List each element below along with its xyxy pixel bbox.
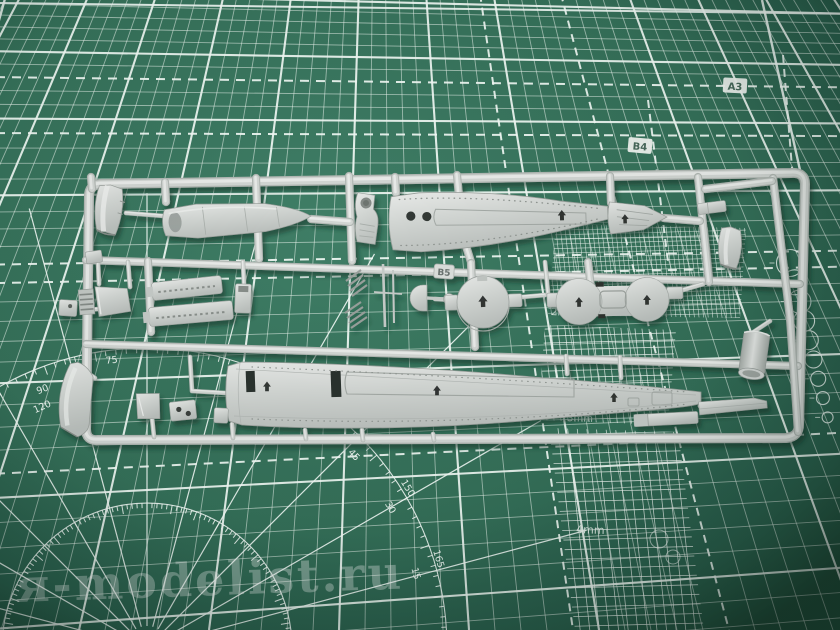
- part-small-block: [214, 408, 229, 424]
- part-equipment-block: [235, 284, 252, 314]
- part-wedge-block: [134, 390, 163, 421]
- mm-label-4mm: 4mm: [576, 523, 605, 537]
- sheet-tag-b4-text: B4: [632, 141, 648, 153]
- sprue-id-tag: B5: [434, 264, 455, 279]
- mat-sheet-size-tag-a3: A3: [723, 77, 748, 93]
- photo-model-sprue-on-cutting-mat: 1651515030135457590120 2mm 3mm 4mm A3 B4: [0, 0, 840, 630]
- part-plate-two-holes: [169, 400, 197, 422]
- part-ladder-unit: [78, 284, 131, 317]
- photo-canvas: 1651515030135457590120 2mm 3mm 4mm A3 B4: [0, 0, 840, 630]
- protractor-angle-label: 75: [105, 355, 118, 367]
- part-small-bracket: [85, 250, 103, 264]
- mat-sheet-size-tag-b4: B4: [627, 137, 652, 154]
- sprue-id-tag-text: B5: [437, 268, 451, 279]
- part-side-fitting: [58, 299, 77, 316]
- sheet-tag-a3-text: A3: [727, 82, 742, 94]
